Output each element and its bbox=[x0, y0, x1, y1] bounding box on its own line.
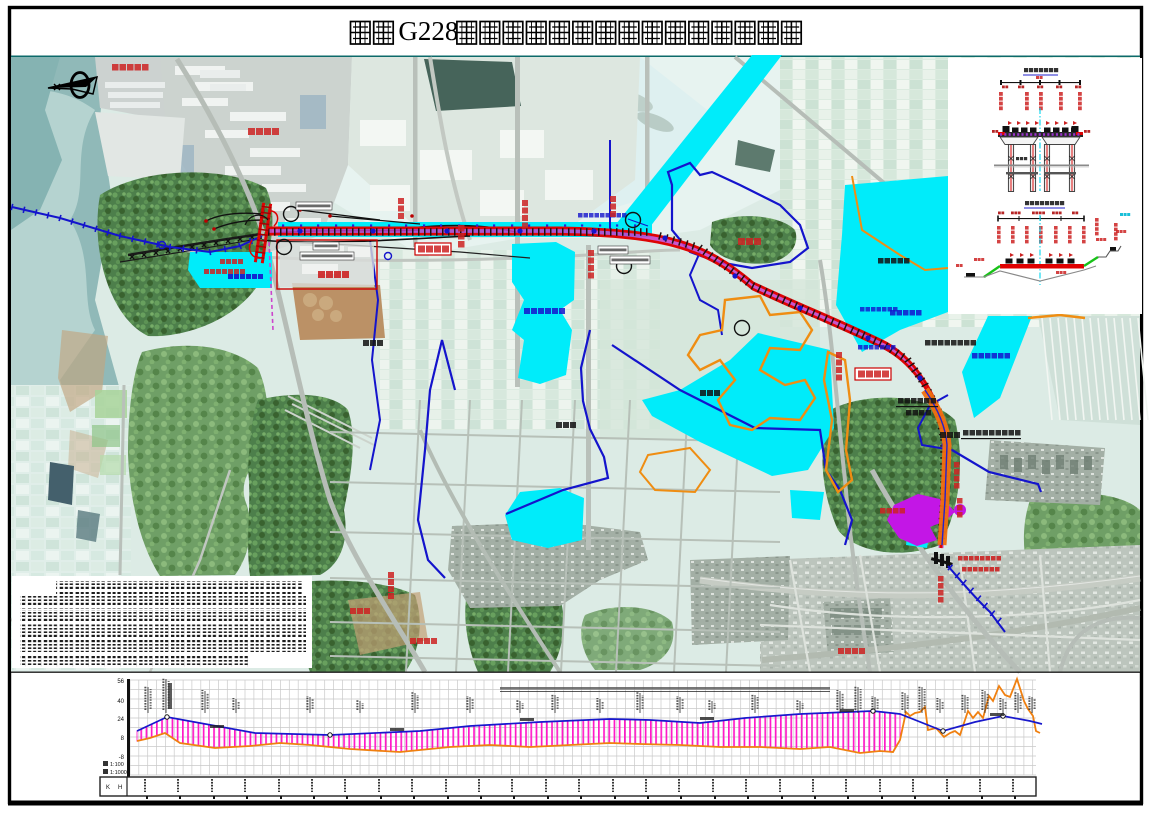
svg-text:24: 24 bbox=[117, 717, 124, 723]
svg-text:K: K bbox=[106, 785, 110, 791]
svg-text:1:100: 1:100 bbox=[110, 762, 124, 768]
svg-text:40: 40 bbox=[117, 699, 124, 705]
svg-text:H: H bbox=[118, 785, 122, 791]
svg-text:1:1000: 1:1000 bbox=[110, 770, 127, 776]
svg-text:56: 56 bbox=[117, 679, 124, 685]
svg-text:-8: -8 bbox=[119, 755, 125, 761]
svg-text:8: 8 bbox=[121, 736, 125, 742]
svg-text:G228: G228 bbox=[398, 16, 458, 46]
